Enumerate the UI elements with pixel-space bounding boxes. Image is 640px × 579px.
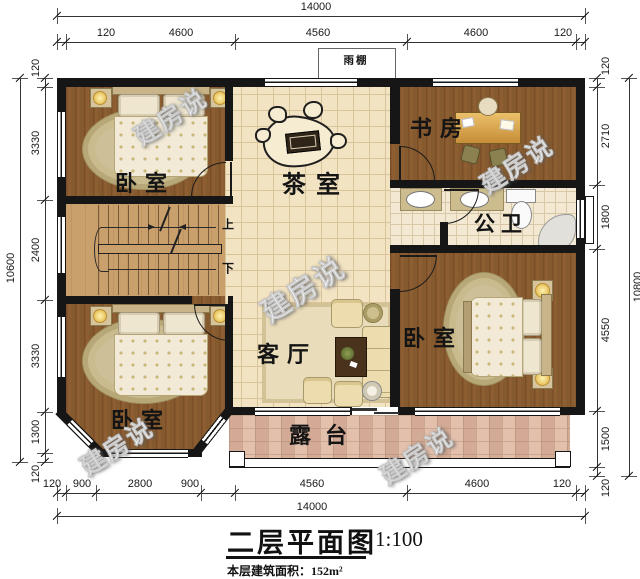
wall-tea-study bbox=[390, 87, 400, 144]
dim-line bbox=[57, 42, 585, 43]
label-tea-room: 茶室 bbox=[282, 165, 350, 200]
wall-right bbox=[576, 78, 585, 415]
terrace-railing-post-right bbox=[555, 451, 571, 467]
stair-tread bbox=[218, 205, 219, 244]
stair-tread bbox=[158, 253, 159, 295]
dim-line bbox=[57, 16, 585, 17]
dim-label: 120 bbox=[97, 27, 115, 39]
door-leaf-bathroom bbox=[444, 189, 478, 191]
dim-label: 1500 bbox=[600, 427, 612, 451]
dim-label: 4560 bbox=[306, 27, 330, 39]
wall-bath-bottom bbox=[390, 245, 576, 253]
stair-tread bbox=[188, 253, 189, 295]
stair-tread bbox=[138, 205, 139, 244]
label-terrace: 露台 bbox=[289, 418, 361, 450]
dim-label: 14000 bbox=[297, 501, 328, 513]
terrace-sliding-door bbox=[374, 412, 399, 415]
dim-label: 900 bbox=[181, 478, 199, 490]
stair-down-label: 下 bbox=[222, 260, 234, 277]
dim-label: 4600 bbox=[169, 27, 193, 39]
side-table-plant bbox=[363, 303, 383, 323]
window-bathroom-right bbox=[576, 200, 585, 238]
label-bedroom-right: 卧室 bbox=[403, 321, 463, 353]
dim-label: 120 bbox=[30, 59, 42, 77]
stair-rail bbox=[98, 244, 222, 254]
bed-footboard bbox=[463, 301, 472, 373]
window-study-top bbox=[433, 78, 518, 87]
label-bathroom: 公卫 bbox=[474, 208, 528, 238]
dim-line bbox=[20, 78, 21, 462]
label-bedroom-top-left: 卧室 bbox=[115, 166, 175, 198]
table-plant bbox=[341, 347, 354, 360]
stair-walkline-turn bbox=[94, 227, 109, 272]
window-bedroom1-left bbox=[57, 112, 66, 177]
dim-label: 4600 bbox=[464, 27, 488, 39]
sink bbox=[406, 191, 435, 208]
stair-tread bbox=[128, 205, 129, 244]
lamp bbox=[93, 91, 107, 105]
tea-stool bbox=[330, 133, 347, 149]
dim-label: 4550 bbox=[600, 318, 612, 342]
label-living-room: 客厅 bbox=[257, 337, 317, 369]
bed-blanket bbox=[114, 334, 208, 396]
window-bedroom2-terrace bbox=[415, 407, 560, 416]
dim-label: 3330 bbox=[30, 344, 42, 368]
tea-tray bbox=[285, 130, 321, 153]
terrace-sliding-door bbox=[352, 408, 377, 411]
dim-line bbox=[57, 493, 585, 494]
stair-tread bbox=[118, 253, 119, 295]
bed-headboard bbox=[541, 294, 552, 376]
wall-bath-alcove bbox=[440, 222, 448, 253]
window-living-terrace bbox=[255, 407, 350, 416]
stair-tread bbox=[158, 205, 159, 244]
pillow bbox=[521, 338, 542, 375]
pillow bbox=[118, 312, 160, 335]
dim-label: 10600 bbox=[5, 253, 17, 284]
dim-label: 2400 bbox=[30, 238, 42, 262]
wall-bed2-left bbox=[390, 289, 400, 407]
stair-up-label: 上 bbox=[222, 216, 234, 233]
stair-tread bbox=[188, 205, 189, 244]
dim-label: 10800 bbox=[632, 272, 640, 303]
wall-stairs-bed3 bbox=[57, 296, 192, 304]
window-bath-sill bbox=[585, 196, 594, 244]
stair-tread bbox=[148, 253, 149, 295]
stair-tread bbox=[128, 253, 129, 295]
dim-label: 120 bbox=[554, 27, 572, 39]
dim-label: 120 bbox=[553, 478, 571, 490]
round-side-table bbox=[362, 381, 382, 401]
dim-line bbox=[45, 78, 46, 462]
stair-tread bbox=[208, 253, 209, 295]
door-leaf-bedroom2 bbox=[400, 255, 436, 257]
lamp bbox=[93, 309, 107, 323]
armchair bbox=[303, 377, 332, 404]
dim-line bbox=[57, 516, 585, 517]
stair-tread bbox=[208, 205, 209, 244]
floor-plan-canvas: 雨棚 bbox=[0, 0, 640, 579]
window-stairs-left bbox=[57, 217, 66, 273]
dim-label: 2710 bbox=[600, 124, 612, 148]
bed-blanket bbox=[470, 297, 523, 377]
stair-tread bbox=[118, 205, 119, 244]
stair-arrow bbox=[148, 224, 155, 230]
wall-stairs-bed3-stub bbox=[228, 296, 233, 304]
door-leaf-study bbox=[399, 146, 401, 180]
dim-label: 3330 bbox=[30, 131, 42, 155]
door-leaf-bedroom1 bbox=[230, 162, 232, 196]
dim-label: 4600 bbox=[465, 478, 489, 490]
stair-tread bbox=[138, 253, 139, 295]
pillow bbox=[521, 299, 542, 336]
dim-label: 1300 bbox=[30, 420, 42, 444]
dim-line bbox=[629, 78, 630, 476]
desk-chair bbox=[478, 97, 498, 116]
dim-label: 120 bbox=[43, 478, 61, 490]
dim-label: 120 bbox=[600, 479, 612, 497]
stair-tread bbox=[168, 253, 169, 295]
drawing-scale: 1:100 bbox=[375, 527, 423, 552]
window-bedroom3-left bbox=[57, 317, 66, 377]
dim-line bbox=[597, 78, 598, 476]
drawing-title: 二层平面图 bbox=[227, 521, 377, 560]
stair-tread bbox=[198, 253, 199, 295]
dim-label: 120 bbox=[600, 57, 612, 75]
rain-canopy-label: 雨棚 bbox=[344, 53, 369, 68]
tea-stool bbox=[268, 106, 287, 123]
dim-label: 2800 bbox=[128, 478, 152, 490]
dim-label: 14000 bbox=[301, 1, 332, 13]
dim-label: 120 bbox=[30, 465, 42, 483]
terrace-railing-post-left bbox=[229, 451, 245, 467]
dim-label: 4560 bbox=[300, 478, 324, 490]
stair-tread bbox=[178, 253, 179, 295]
area-note: 本层建筑面积：152m² bbox=[227, 562, 343, 579]
armchair bbox=[331, 299, 363, 328]
dim-label: 1800 bbox=[600, 205, 612, 229]
title-underline bbox=[226, 556, 366, 559]
desk-paper bbox=[499, 119, 514, 131]
stair-tread bbox=[198, 205, 199, 244]
window-tea-top bbox=[265, 78, 357, 87]
stair-walkline-down bbox=[108, 269, 216, 270]
door-leaf-bedroom3 bbox=[194, 304, 228, 306]
wall-bed1-right bbox=[225, 87, 233, 161]
label-study: 书房 bbox=[410, 111, 470, 143]
armchair bbox=[334, 381, 363, 407]
tea-stool bbox=[303, 101, 323, 119]
stair-tread bbox=[218, 253, 219, 295]
dim-label: 900 bbox=[73, 478, 91, 490]
